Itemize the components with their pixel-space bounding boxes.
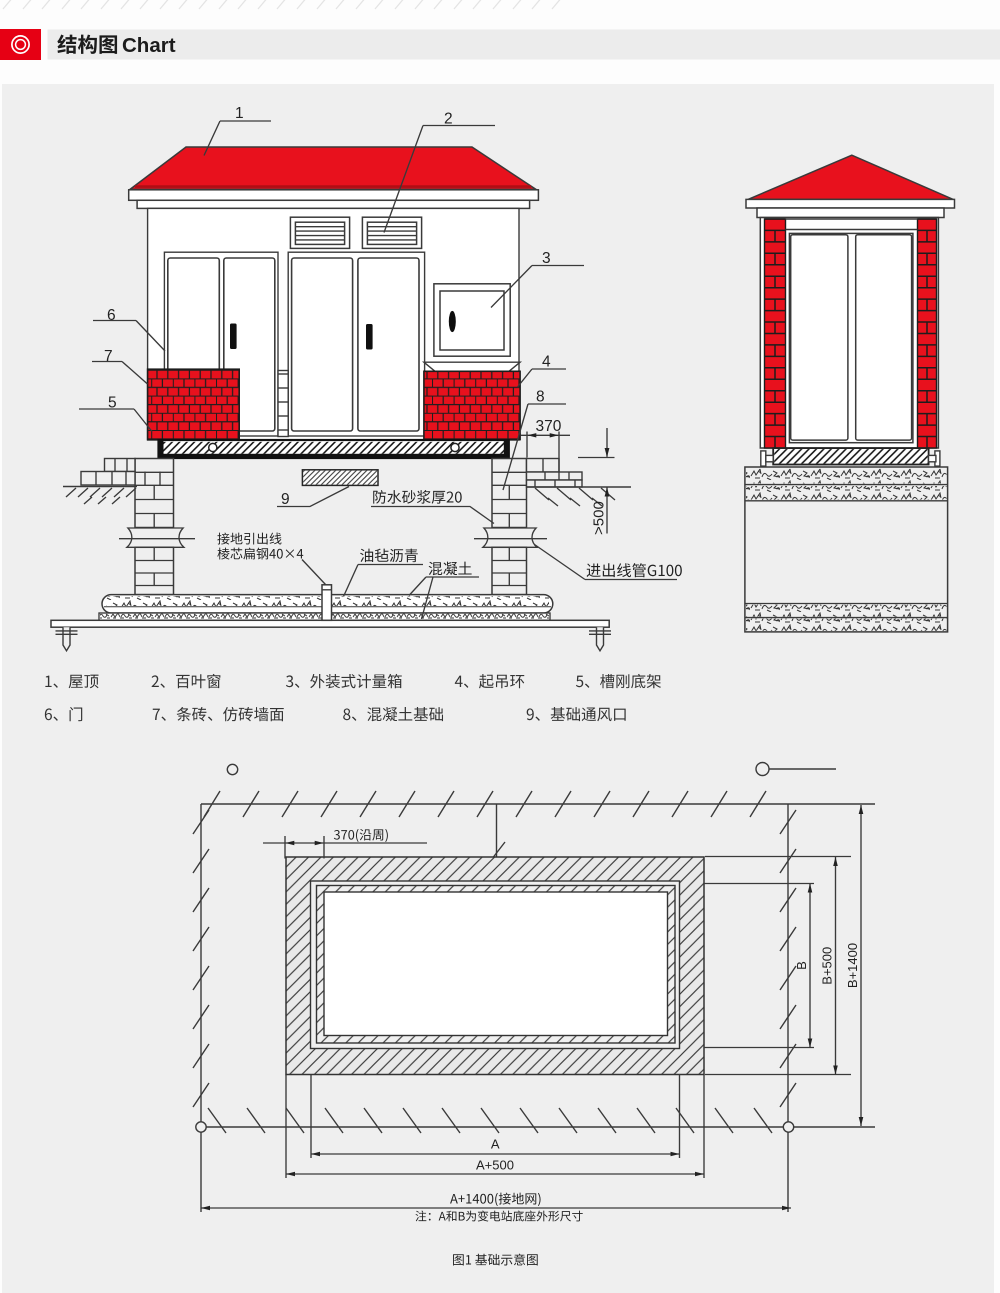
svg-text:>500: >500 [591,501,608,535]
svg-text:7: 7 [104,348,113,365]
svg-text:A+500: A+500 [476,1158,514,1173]
svg-text:4: 4 [542,354,551,371]
svg-text:8: 8 [536,389,545,406]
svg-text:9: 9 [281,491,290,508]
svg-text:B+1400: B+1400 [845,943,860,988]
svg-text:3: 3 [542,250,551,267]
svg-text:B: B [794,961,809,970]
svg-text:B+500: B+500 [820,947,835,985]
svg-text:A: A [491,1137,500,1152]
svg-text:1: 1 [235,105,244,122]
svg-text:6: 6 [107,307,116,324]
svg-text:Chart: Chart [122,34,176,57]
svg-text:370: 370 [536,418,562,435]
